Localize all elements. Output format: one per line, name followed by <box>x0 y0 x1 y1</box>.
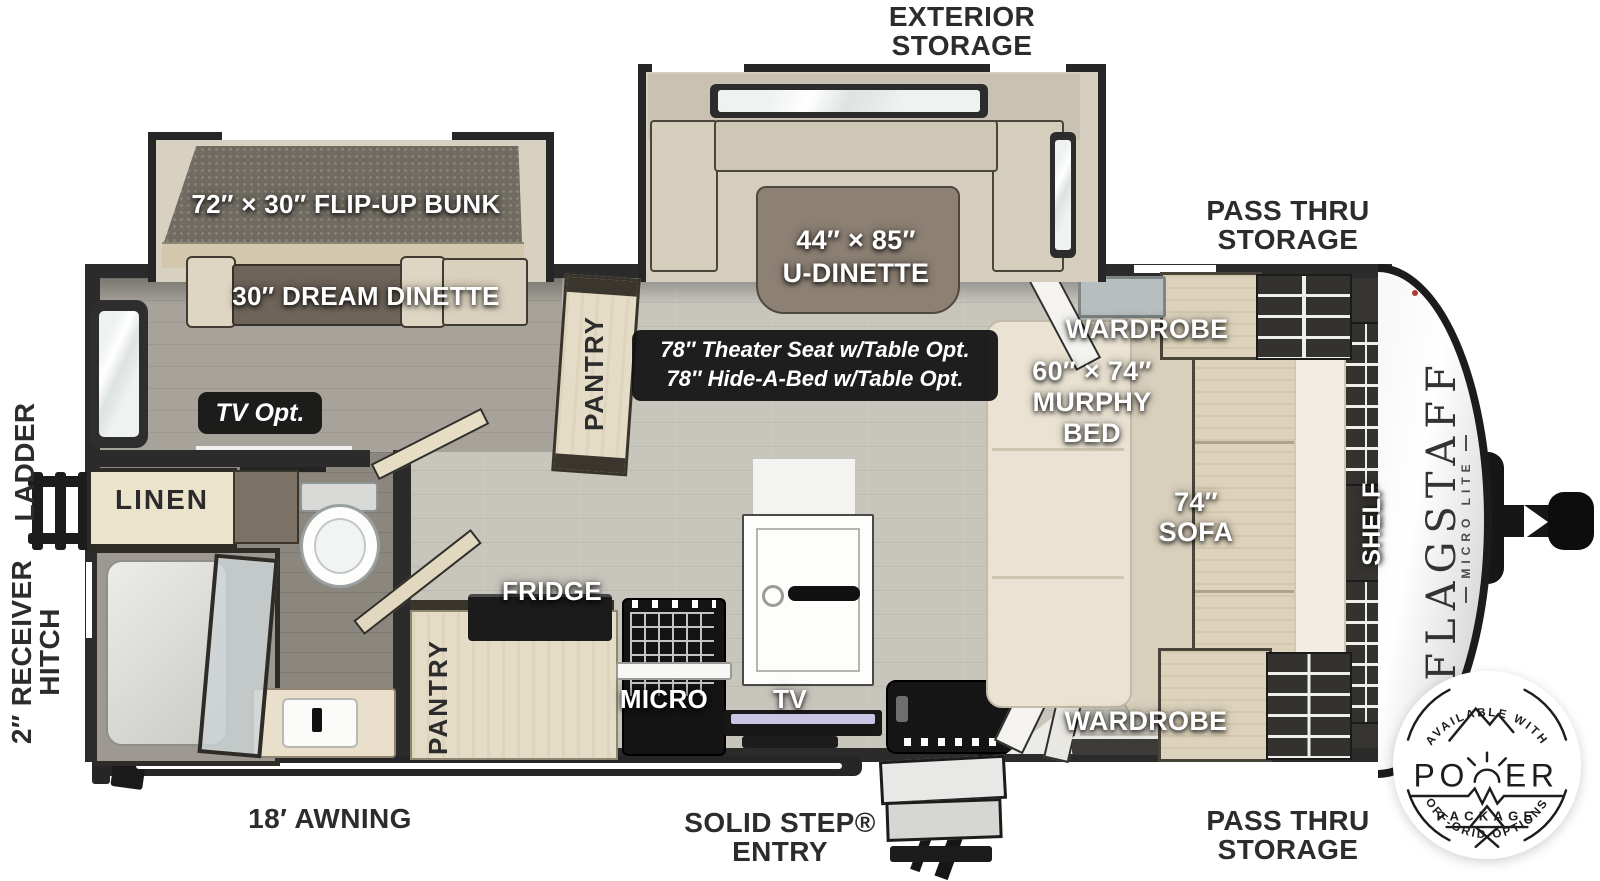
receiver-hitch-label: 2″ RECEIVER HITCH <box>8 542 64 762</box>
wardrobe-bottom-label: WARDROBE <box>1056 706 1236 737</box>
badge-power-right-text: ER <box>1505 758 1559 794</box>
micro-label: MICRO <box>602 684 726 714</box>
flip-up-bunk-label: 72″ × 30″ FLIP-UP BUNK <box>160 189 532 219</box>
kitchen-tv-base <box>742 736 838 748</box>
sink-faucet <box>896 696 908 722</box>
udinette-side-window-glass <box>1055 140 1071 250</box>
power-package-badge: AVAILABLE WITH PO ER PACKAGE OFF-GRID OP… <box>1393 671 1581 859</box>
entry-door-handle <box>788 586 860 601</box>
murphy-bed-text-2: BED <box>1002 418 1182 449</box>
pass-thru-bottom-line2: STORAGE <box>1188 835 1388 864</box>
udinette-window-dash-left <box>652 64 744 72</box>
sofa-size-text: 74″ <box>1139 487 1253 517</box>
bunk-slideout-window-dash <box>222 132 452 140</box>
theater-option-line2: 78″ Hide-A-Bed w/Table Opt. <box>632 364 998 393</box>
bath-top-wall <box>85 450 370 467</box>
badge-power-left-text: PO <box>1414 758 1470 794</box>
exterior-storage-label: EXTERIOR STORAGE <box>862 2 1062 61</box>
bottom-drawer-front <box>1072 736 1162 755</box>
entry-line2: ENTRY <box>680 837 880 866</box>
receiver-hitch-line1: 2″ RECEIVER <box>8 542 36 762</box>
floorplan-canvas: FLAGSTAFF MICRO LITE SHELF 72″ × 30″ FLI… <box>0 0 1600 881</box>
wardrobe-top-label: WARDROBE <box>1057 314 1237 345</box>
rear-window-glass <box>99 311 139 437</box>
ladder-rung-2 <box>55 472 66 550</box>
wardrobe-bottom-cabinet <box>1158 648 1272 762</box>
tv-option-badge: TV Opt. <box>198 392 322 434</box>
pass-thru-top-line1: PASS THRU <box>1188 196 1388 225</box>
pass-thru-top-label: PASS THRU STORAGE <box>1188 196 1388 255</box>
bedroom-skylight <box>1078 276 1166 318</box>
sofa-label: 74″ SOFA <box>1139 487 1253 547</box>
entry-label: SOLID STEP® ENTRY <box>680 808 880 867</box>
wardrobe-top-rack <box>1256 274 1352 360</box>
udinette-name-text: U-DINETTE <box>758 257 954 290</box>
linen-label: LINEN <box>87 484 237 516</box>
brand-series-label: MICRO LITE <box>1458 419 1474 619</box>
murphy-bed-text-1: MURPHY <box>1002 387 1182 418</box>
entry-door-flap <box>752 458 856 516</box>
hitch-coupler <box>1548 492 1594 550</box>
udinette-label: 44″ × 85″ U-DINETTE <box>758 224 954 290</box>
brand-series-text: MICRO LITE <box>1459 459 1473 578</box>
stove-tick-row <box>632 600 716 608</box>
theater-option-badge: 78″ Theater Seat w/Table Opt. 78″ Hide-A… <box>632 330 998 401</box>
pass-thru-bottom-label: PASS THRU STORAGE <box>1188 806 1388 865</box>
udinette-window-dash-right <box>990 64 1066 72</box>
step-tread-3 <box>890 846 992 862</box>
exterior-storage-line2: STORAGE <box>862 31 1062 60</box>
udinette-size-text: 44″ × 85″ <box>758 224 954 257</box>
murphy-bed-size-text: 60″ × 74″ <box>1002 356 1182 387</box>
sink-dot-row <box>904 738 1004 746</box>
wardrobe-bottom-rack <box>1266 652 1352 760</box>
tv-label: TV <box>758 684 822 714</box>
bath-cabinet <box>233 470 299 544</box>
udinette-bench-back <box>714 120 998 172</box>
murphy-bed-label: 60″ × 74″ MURPHY BED <box>1002 356 1182 449</box>
pantry-kitchen-label: PANTRY <box>423 622 451 772</box>
awning-label: 18′ AWNING <box>235 804 425 833</box>
power-package-badge-art: AVAILABLE WITH PO ER PACKAGE OFF-GRID OP… <box>1393 671 1581 859</box>
pass-thru-bottom-line1: PASS THRU <box>1188 806 1388 835</box>
toilet-bowl-inner <box>314 518 366 574</box>
bath-faucet <box>312 708 322 732</box>
exterior-storage-line1: EXTERIOR <box>862 2 1062 31</box>
theater-option-line1: 78″ Theater Seat w/Table Opt. <box>632 335 998 364</box>
dream-dinette-label: 30″ DREAM DINETTE <box>186 281 546 311</box>
receiver-hitch-line2: HITCH <box>36 542 64 762</box>
udinette-bench-left <box>650 120 718 272</box>
pass-thru-top-line2: STORAGE <box>1188 225 1388 254</box>
fridge-label: FRIDGE <box>490 576 614 606</box>
sofa-seam-2 <box>992 576 1124 579</box>
entry-line1: SOLID STEP® <box>680 808 880 837</box>
clearance-light-dot <box>1412 290 1418 296</box>
shelf-label: SHELF <box>1358 462 1386 586</box>
ladder-label: LADDER <box>10 382 38 542</box>
oven-handle-bar <box>616 662 732 680</box>
kitchen-tv-screen <box>731 714 875 724</box>
pantry-main-label: PANTRY <box>579 283 607 463</box>
step-tread-2 <box>885 798 1002 842</box>
sofa-name-text: SOFA <box>1139 517 1253 547</box>
entry-door-lock <box>762 585 784 607</box>
skylight-glass <box>718 90 980 112</box>
